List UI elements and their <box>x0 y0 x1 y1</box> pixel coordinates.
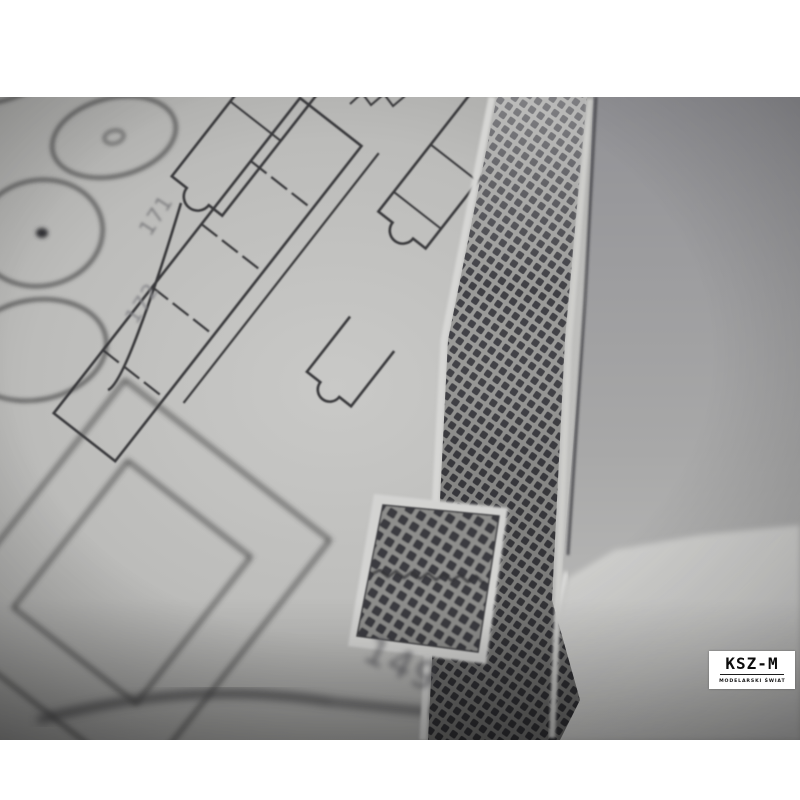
top-white-margin <box>0 0 800 97</box>
screenshot-root: 171 172 <box>0 0 800 800</box>
bottom-shade-overlay <box>0 97 800 740</box>
brand-divider <box>720 674 784 675</box>
brand-watermark: KSZ-M MODELARSKI ŚWIAT <box>709 651 795 689</box>
brand-name: KSZ-M <box>725 656 778 672</box>
brand-tagline: MODELARSKI ŚWIAT <box>719 677 785 682</box>
bottom-white-margin <box>0 740 800 800</box>
model-kit-photo: 171 172 <box>0 97 800 740</box>
photo-canvas: 171 172 <box>0 97 800 740</box>
